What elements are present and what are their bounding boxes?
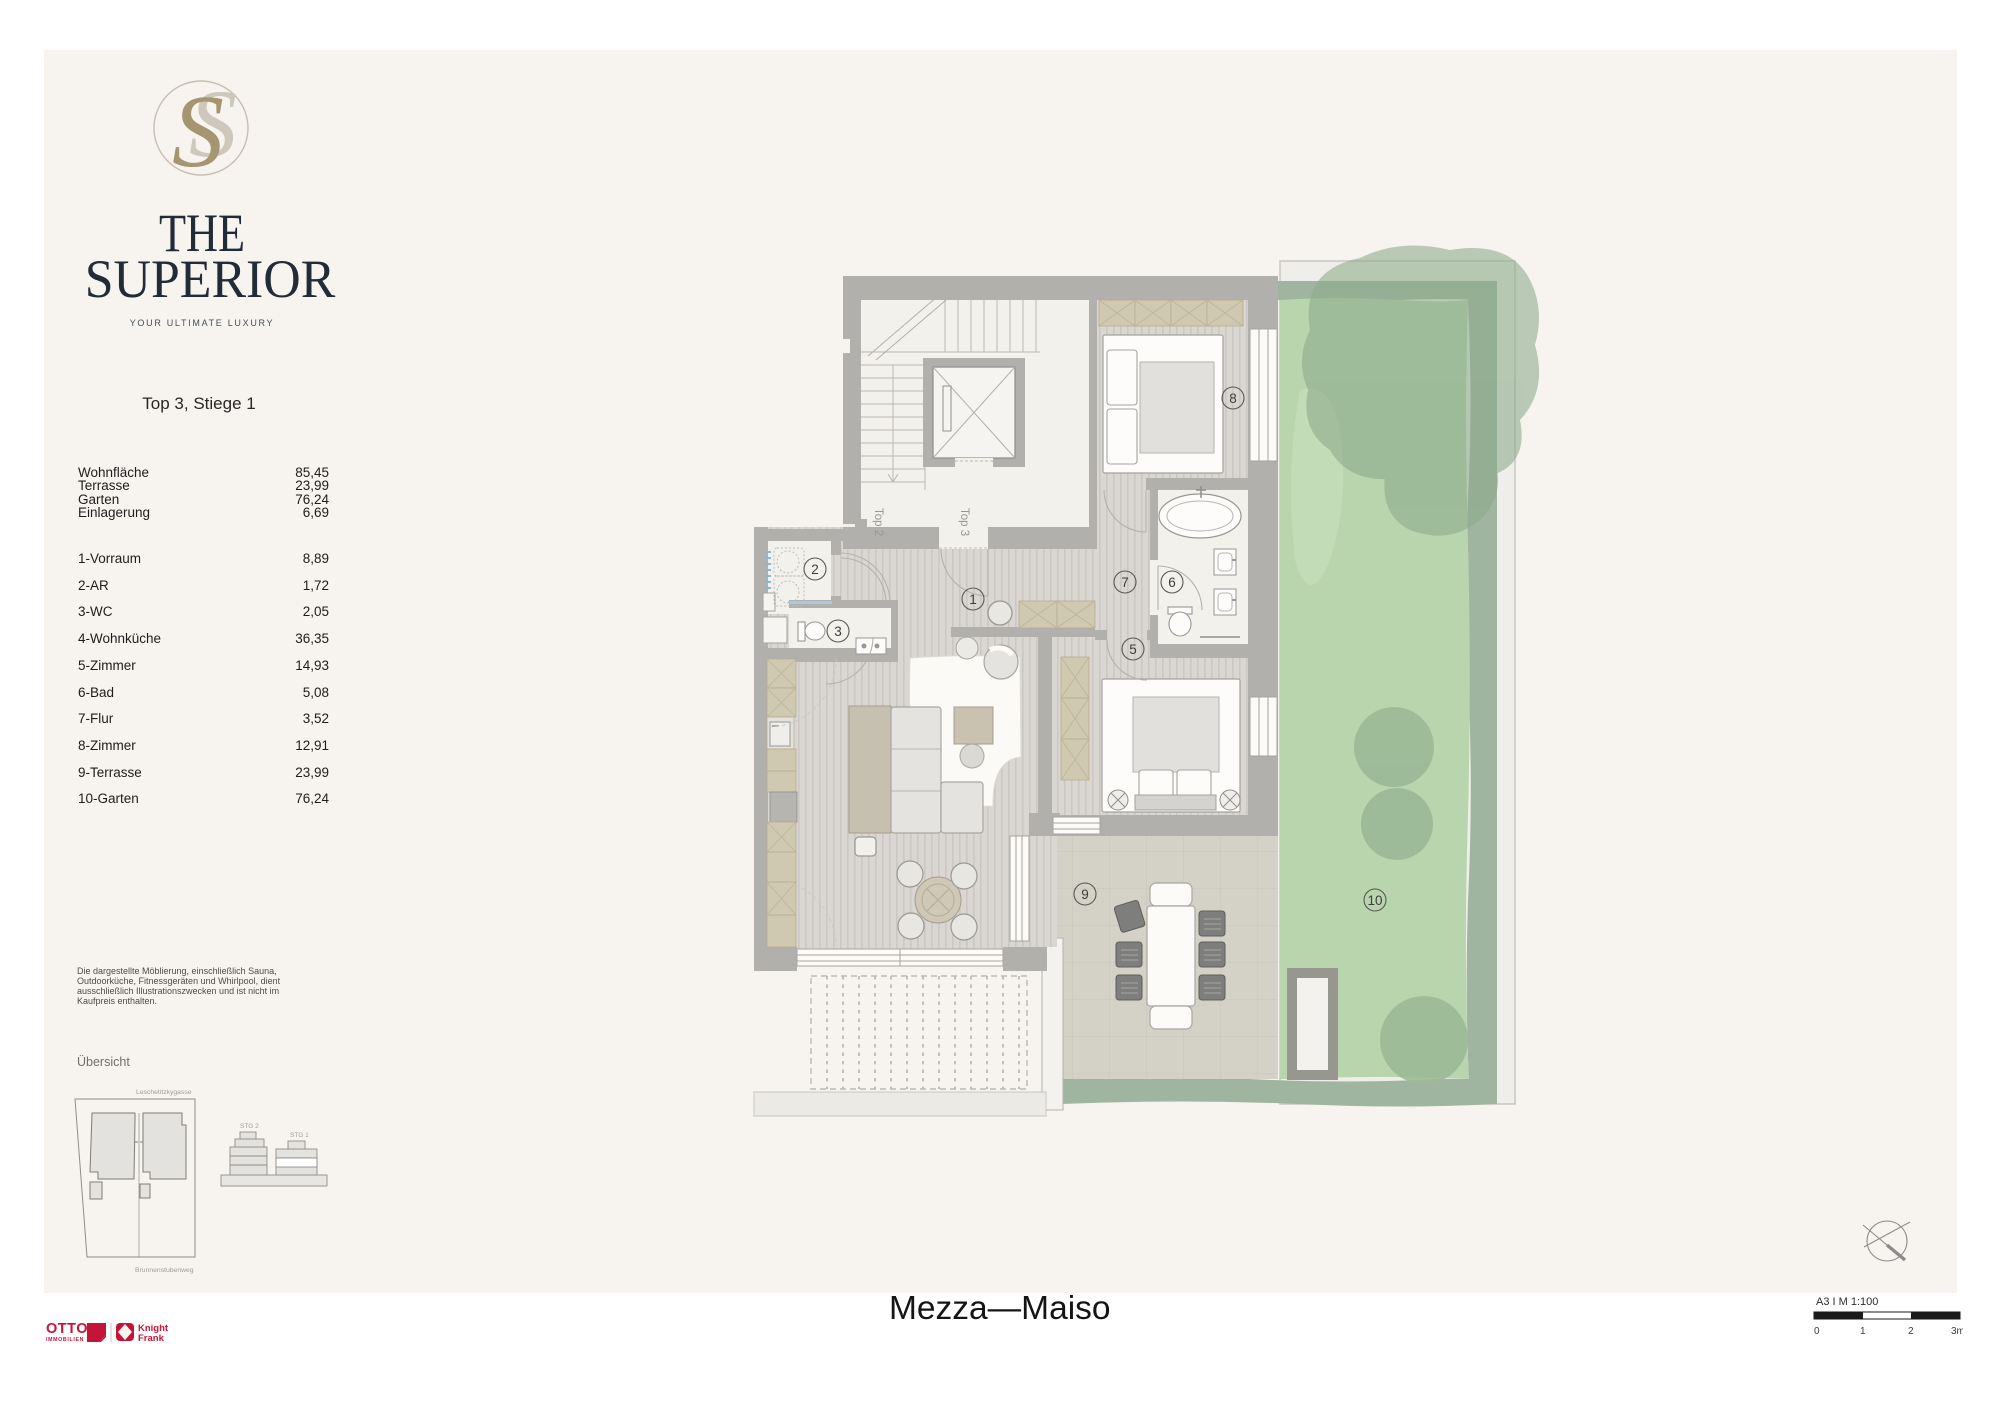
svg-text:9: 9 bbox=[1081, 887, 1089, 902]
svg-text:2: 2 bbox=[1908, 1326, 1914, 1337]
svg-text:1: 1 bbox=[1860, 1326, 1866, 1337]
svg-text:5: 5 bbox=[1129, 642, 1137, 657]
svg-text:10: 10 bbox=[1367, 893, 1382, 908]
svg-text:8: 8 bbox=[1229, 391, 1237, 406]
svg-text:OTTO: OTTO bbox=[46, 1321, 88, 1337]
svg-text:3: 3 bbox=[834, 624, 842, 639]
svg-text:IMMOBILIEN: IMMOBILIEN bbox=[46, 1337, 84, 1343]
svg-text:Top 2: Top 2 bbox=[872, 508, 884, 536]
svg-text:7: 7 bbox=[1121, 575, 1129, 590]
svg-text:0: 0 bbox=[1814, 1326, 1820, 1337]
svg-text:6: 6 bbox=[1168, 575, 1176, 590]
svg-text:2: 2 bbox=[811, 562, 819, 577]
svg-text:1: 1 bbox=[969, 592, 977, 607]
svg-text:Frank: Frank bbox=[138, 1333, 165, 1344]
svg-text:Top 3: Top 3 bbox=[958, 508, 970, 536]
svg-text:3m: 3m bbox=[1951, 1326, 1963, 1337]
